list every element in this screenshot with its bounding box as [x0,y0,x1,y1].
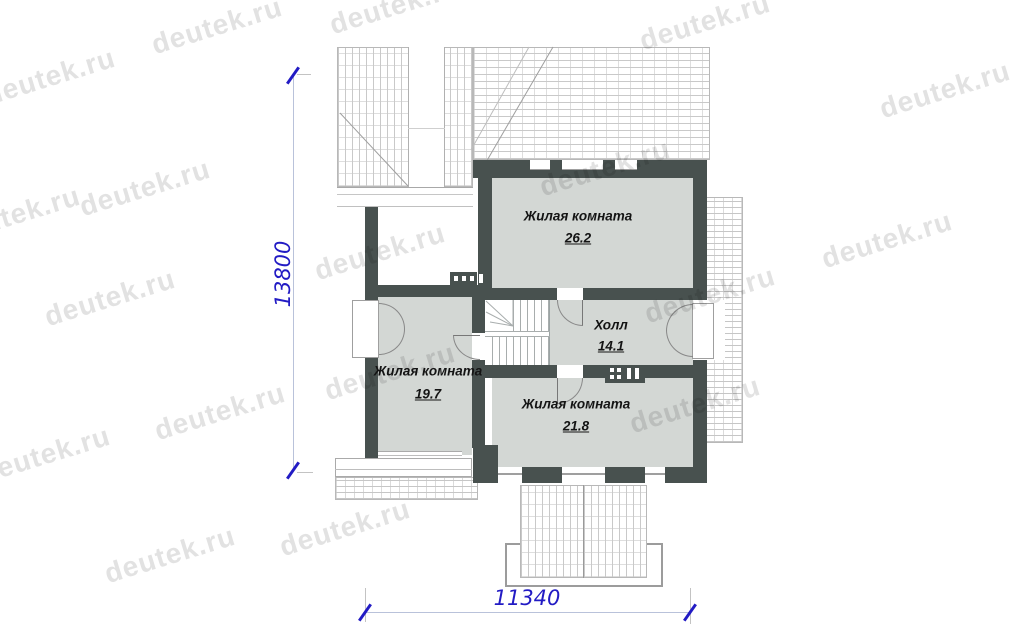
room-living-left-area: 19.7 [415,387,441,402]
room-living-top-area: 26.2 [565,231,591,246]
window-bottom-3 [645,467,665,483]
dim-height-label: 13800 [271,204,295,344]
window-bottom-2 [562,467,605,483]
balcony-door-left-frame [352,300,379,358]
wall-hall-bottom-a [472,365,557,378]
dim-ext-right [690,588,691,624]
wall-corner-bottom-left [473,445,498,483]
staircase [485,300,550,365]
chimney-flue [470,276,474,281]
room-living-bottom-area: 21.8 [563,419,589,434]
watermark: deutek.ru [98,519,241,591]
porch-roof-ridge [583,485,584,578]
eaves-line [337,194,473,195]
dim-ext-top [297,74,311,75]
room-living-top-fill [492,178,693,288]
dim-ext-bottom [297,472,313,473]
roof-dormer-strip [408,47,445,187]
watermark: deutek.ru [148,376,291,448]
chimney-flue [617,375,621,379]
watermark: deutek.ru [145,0,288,62]
watermark: deutek.ru [73,152,216,224]
chimney-flue [635,368,639,379]
stair-flight-lower [492,337,550,365]
wall-corner-bottom-right [665,467,707,483]
terrace-line [335,469,472,470]
room-living-bottom-name: Жилая комната [522,397,631,412]
watermark: deutek.ru [0,179,87,251]
dim-ext-left [365,588,366,622]
window-bottom-1 [498,467,522,483]
watermark: deutek.ru [38,262,181,334]
wall-living-left-top [365,285,478,297]
chimney-flue [610,368,614,372]
watermark: deutek.ru [0,419,117,491]
room-living-top-name: Жилая комната [524,209,633,224]
chimney-attic [450,272,477,285]
watermark: deutek.ru [308,216,451,288]
floor-plan-canvas: Жилая комната 26.2 Жилая комната 19.7 Хо… [0,0,1024,631]
watermark: deutek.ru [873,54,1016,126]
roof-hatch-top-right [473,47,710,160]
wall-bottom-pier-2 [605,467,645,483]
chimney-flue [610,375,614,379]
wall-bottom-pier-1 [522,467,562,483]
chimney-flue [617,368,621,372]
watermark: deutek.ru [273,492,416,564]
roof-dormer-divider [408,128,445,129]
wall-hall-top-a [472,288,557,300]
stair-flight-upper [513,300,550,331]
wall-vent-slot [479,274,483,283]
watermark: deutek.ru [815,204,958,276]
window-band-line [378,455,462,456]
dim-line-horizontal [365,612,690,613]
chimney-flue [462,276,466,281]
watermark: deutek.ru [0,41,122,113]
hall-area: 14.1 [598,339,624,354]
eaves-band [337,187,473,207]
chimney-flue [454,276,458,281]
terrace-floor [335,458,472,477]
roof-hatch-top-left [337,47,473,187]
chimney-hall [605,365,645,383]
chimney-flue [627,368,631,379]
hall-name: Холл [594,318,628,333]
dim-width-label: 11340 [457,586,597,610]
watermark: deutek.ru [323,0,466,42]
